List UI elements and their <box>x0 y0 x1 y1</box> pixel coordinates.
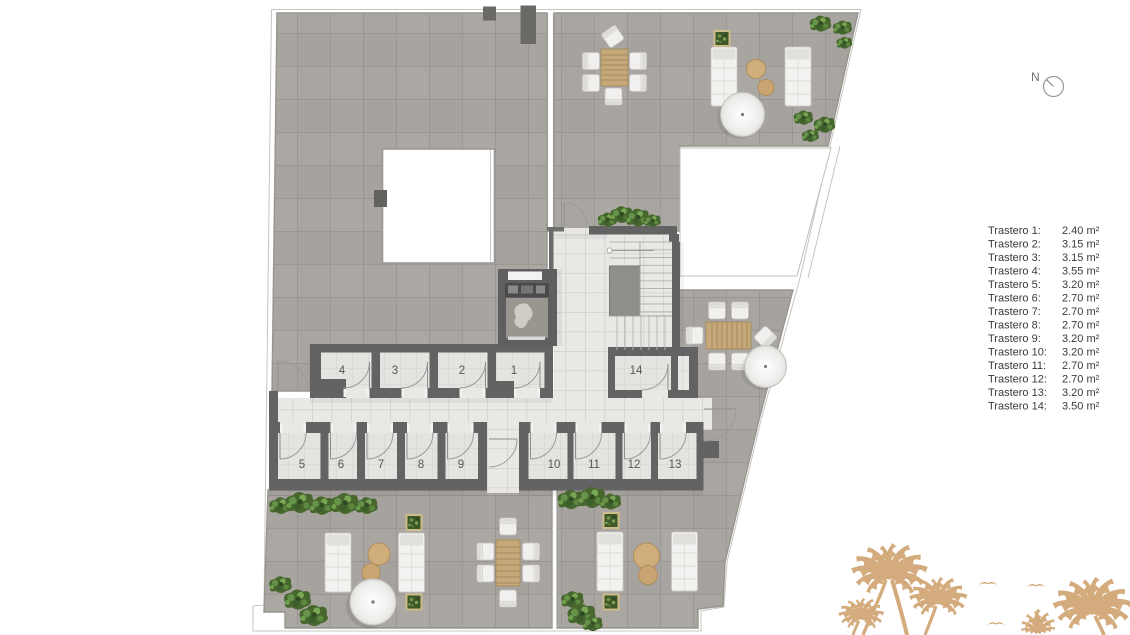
svg-text:Trastero 13:: Trastero 13: <box>988 387 1047 399</box>
svg-text:2.70 m²: 2.70 m² <box>1062 293 1100 305</box>
svg-text:1: 1 <box>511 365 517 377</box>
svg-text:Trastero 9:: Trastero 9: <box>988 333 1041 345</box>
svg-text:4: 4 <box>339 365 346 377</box>
svg-text:N: N <box>1031 70 1040 84</box>
svg-text:10: 10 <box>548 459 561 471</box>
svg-text:2.70 m²: 2.70 m² <box>1062 360 1100 372</box>
svg-text:7: 7 <box>378 459 384 471</box>
svg-text:11: 11 <box>588 459 600 471</box>
svg-text:5: 5 <box>299 459 305 471</box>
svg-text:3.50 m²: 3.50 m² <box>1062 401 1100 413</box>
svg-text:Trastero 10:: Trastero 10: <box>988 347 1047 359</box>
svg-text:3.15 m²: 3.15 m² <box>1062 252 1100 264</box>
svg-text:13: 13 <box>669 459 682 471</box>
svg-text:Trastero 14:: Trastero 14: <box>988 401 1047 413</box>
svg-text:Trastero 1:: Trastero 1: <box>988 225 1041 237</box>
svg-text:2.70 m²: 2.70 m² <box>1062 374 1100 386</box>
svg-text:Trastero 4:: Trastero 4: <box>988 266 1041 278</box>
svg-text:3.55 m²: 3.55 m² <box>1062 266 1100 278</box>
svg-text:8: 8 <box>418 459 424 471</box>
svg-text:Trastero 5:: Trastero 5: <box>988 279 1041 291</box>
svg-text:3: 3 <box>392 365 398 377</box>
svg-text:9: 9 <box>458 459 464 471</box>
svg-text:2.70 m²: 2.70 m² <box>1062 306 1100 318</box>
svg-text:2.70 m²: 2.70 m² <box>1062 320 1100 332</box>
svg-text:2: 2 <box>459 365 465 377</box>
svg-text:Trastero 7:: Trastero 7: <box>988 306 1041 318</box>
svg-text:3.15 m²: 3.15 m² <box>1062 239 1100 251</box>
svg-text:Trastero 8:: Trastero 8: <box>988 320 1041 332</box>
svg-text:Trastero 3:: Trastero 3: <box>988 252 1041 264</box>
svg-text:14: 14 <box>630 365 643 377</box>
svg-text:Trastero 11:: Trastero 11: <box>988 360 1046 372</box>
svg-text:3.20 m²: 3.20 m² <box>1062 333 1100 345</box>
svg-text:3.20 m²: 3.20 m² <box>1062 279 1100 291</box>
svg-text:6: 6 <box>338 459 344 471</box>
svg-text:3.20 m²: 3.20 m² <box>1062 387 1100 399</box>
svg-text:Trastero 12:: Trastero 12: <box>988 374 1047 386</box>
svg-text:Trastero 6:: Trastero 6: <box>988 293 1041 305</box>
svg-text:3.20 m²: 3.20 m² <box>1062 347 1100 359</box>
svg-text:Trastero 2:: Trastero 2: <box>988 239 1041 251</box>
svg-text:12: 12 <box>628 459 641 471</box>
svg-text:2.40 m²: 2.40 m² <box>1062 225 1100 237</box>
